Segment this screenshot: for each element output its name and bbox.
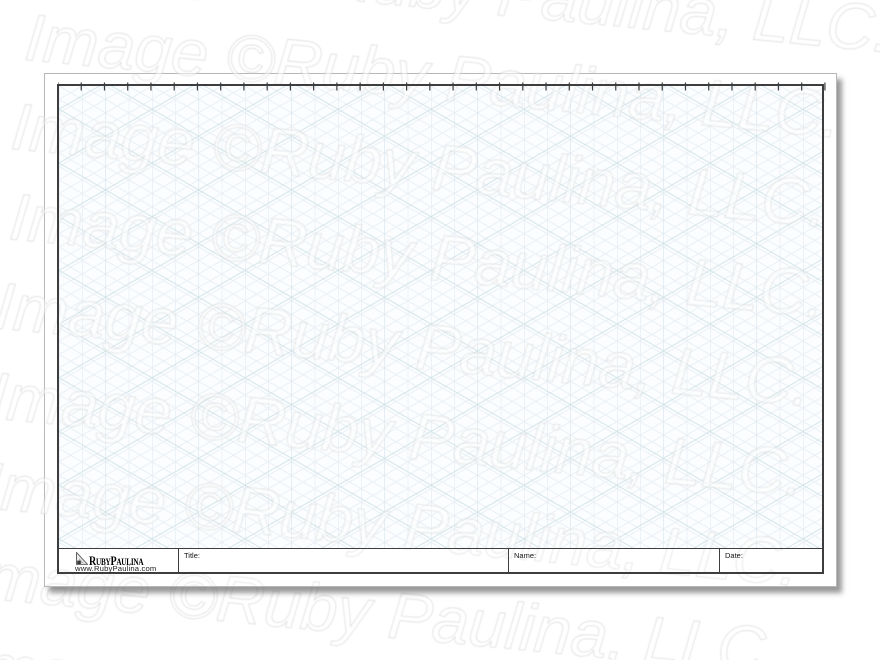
svg-text:Image ©Ruby Paulina, LLC.: Image ©Ruby Paulina, LLC.: [0, 627, 783, 660]
svg-text:Image ©Ruby Paulina, LLC.: Image ©Ruby Paulina, LLC.: [73, 0, 880, 66]
svg-text:Image ©Ruby Paulina, LLC.: Image ©Ruby Paulina, LLC.: [0, 627, 783, 660]
svg-text:Image ©Ruby Paulina, LLC.: Image ©Ruby Paulina, LLC.: [73, 0, 880, 66]
